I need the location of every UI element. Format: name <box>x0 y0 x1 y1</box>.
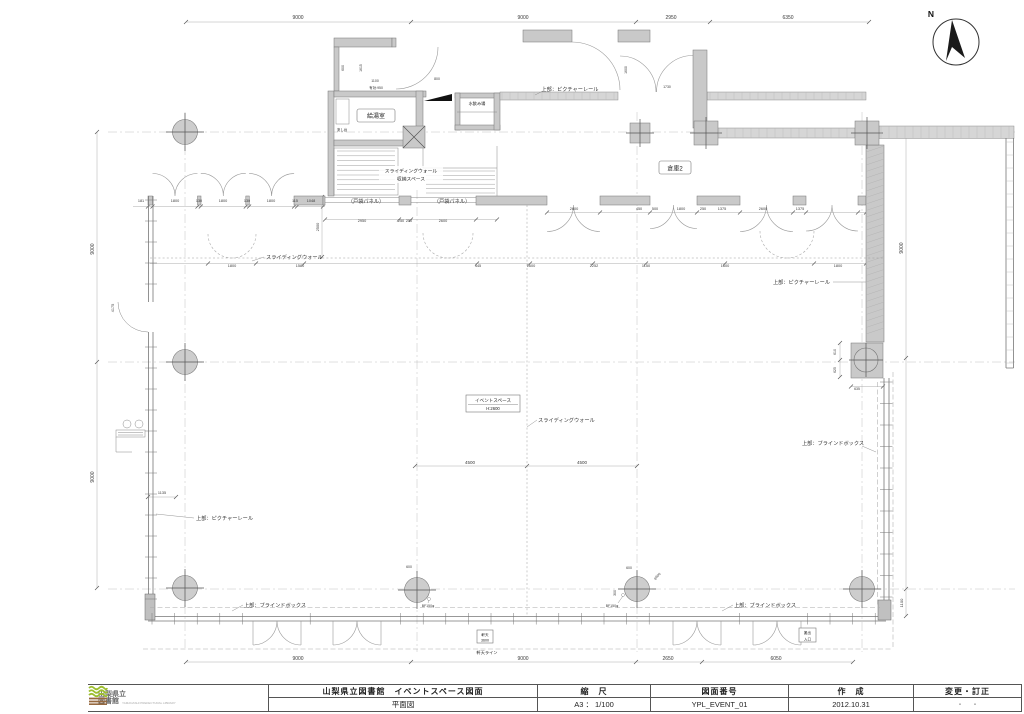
corner-post-se <box>878 600 891 620</box>
service-area-walls <box>328 30 1014 368</box>
dimension-label: 610 <box>833 349 837 355</box>
dimension-label: 4175 <box>111 304 115 312</box>
dimension-label: 1615 <box>359 64 363 72</box>
dimension-label: 115 <box>292 199 298 203</box>
dimension-label: 1800 <box>228 264 236 268</box>
dimension-label: 181 <box>138 199 144 203</box>
dimension-label: 2600 <box>759 207 767 211</box>
dimension-label: 2252 <box>590 264 598 268</box>
dimension-label: 250 <box>398 219 404 223</box>
annotation-label: 上部：ブラインドボックス <box>802 439 864 447</box>
grid-column <box>166 343 204 381</box>
dimension-label: 1600 <box>527 264 535 268</box>
sheet-name: 平面図 <box>269 698 537 711</box>
title-cell-number: 図面番号 YPL_EVENT_01 <box>650 685 788 711</box>
dimension-lines <box>95 20 908 664</box>
dimension-label: 1800 <box>834 264 842 268</box>
storage2-label: 倉庫2 <box>667 165 683 173</box>
dimension-label: 130 <box>244 199 250 203</box>
leaders <box>116 91 876 611</box>
loading-label-1: 搬出 <box>804 630 812 635</box>
dimension-label: 6050 <box>770 656 781 662</box>
logo-text-line1: 山梨県立 <box>98 691 176 698</box>
wall-fixtures <box>116 420 145 452</box>
dimension-label: 250 <box>406 219 412 223</box>
dimension-label: 1150 <box>642 264 650 268</box>
grid-column <box>843 570 881 608</box>
dimension-label: 1800 <box>219 199 227 203</box>
sliding-storage-label-1: スライディングウォール <box>385 168 438 175</box>
dimension-label: 445 <box>475 264 481 268</box>
dimension-label: 有効:950 <box>369 85 383 90</box>
floor-plan-svg: 9000900029506350900090002650605090009000… <box>0 0 1024 684</box>
annotation-label: スライディングウォール <box>266 253 323 261</box>
dimension-label: 130 <box>196 199 202 203</box>
drinking-fountain-label: 水飲み場 <box>469 100 487 107</box>
dimension-label: 800 <box>434 77 440 81</box>
annotation-label: 上部：ブラインドボックス <box>734 601 796 609</box>
grid-column <box>618 570 656 608</box>
dimension-label: BF150φ <box>606 604 619 608</box>
drawing-number-label: 図面番号 <box>651 685 788 698</box>
dimension-label: 600 <box>626 566 632 570</box>
scale-value: A3 ： 1/100 <box>538 698 650 711</box>
dimension-label: 1135 <box>158 491 166 495</box>
revision-label: 変更・訂正 <box>914 685 1021 698</box>
dimension-label: 1800 <box>171 199 179 203</box>
dimension-label: 600 <box>341 65 345 71</box>
room-labels: イベントスペース H:2600 給湯室 流し台 水飲み場 倉庫2 スライディング… <box>337 100 816 656</box>
sink-fixture <box>336 99 349 124</box>
event-space-name: イベントスペース <box>475 398 512 403</box>
dimension-label: 600 <box>406 565 412 569</box>
title-cell-created: 作 成 2012.10.31 <box>788 685 913 711</box>
loading-label-2: 入口 <box>804 637 812 642</box>
square-column <box>626 119 654 147</box>
dimension-label: 1580 <box>296 264 304 268</box>
slope-symbol <box>424 94 452 101</box>
dimension-label: 1800 <box>677 207 685 211</box>
eave-label-2: 3600 <box>481 639 489 643</box>
square-column <box>690 117 722 149</box>
title-cell-project: 山梨県立図書館 イベントスペース図面 平面図 <box>268 685 537 711</box>
kitchenette-label: 給湯室 <box>367 112 385 120</box>
event-space-height: H:2600 <box>486 406 500 411</box>
title-cell-revision: 変更・訂正 ・ ・ <box>913 685 1021 711</box>
title-cell-scale: 縮 尺 A3 ： 1/100 <box>537 685 650 711</box>
dimension-label: 1600 <box>721 264 729 268</box>
scale-label: 縮 尺 <box>538 685 650 698</box>
dimension-label: 4500 <box>577 460 588 465</box>
annotation-labels: 上部：ピクチャーレール上部：ピクチャーレール上部：ピクチャーレール上部：ブライン… <box>196 85 864 609</box>
dimension-label: 4500 <box>465 460 476 465</box>
annotation-label: （戸袋パネル） <box>348 197 384 205</box>
north-wall <box>148 173 866 231</box>
dimension-label: 9000 <box>517 15 528 21</box>
revision-value: ・ ・ <box>914 698 1021 711</box>
grid-column <box>166 113 204 151</box>
dimension-label: 2500 <box>316 223 320 231</box>
dashed-lines <box>143 205 893 649</box>
dimension-label: 2600 <box>439 219 447 223</box>
annotation-label: 上部：ピクチャーレール <box>196 514 253 522</box>
library-logo-icon <box>88 685 108 705</box>
sliding-storage-label-2: 収納スペース <box>397 176 425 183</box>
dimension-label: 2950 <box>665 15 676 21</box>
north-label: N <box>928 9 934 19</box>
dimension-label: 1730 <box>663 85 671 89</box>
dimension-label: 9000 <box>517 656 528 662</box>
dimension-label: 300 <box>613 590 617 596</box>
created-value: 2012.10.31 <box>789 698 913 711</box>
dimension-label: 635 <box>854 387 860 391</box>
library-logo: 山梨県立 図書館 YAMANASHI PREFECTURAL LIBRARY <box>88 685 268 711</box>
dimension-label: 1100 <box>371 79 379 83</box>
dimension-label: 9000 <box>90 243 96 254</box>
dimension-label: 1100 <box>899 598 904 607</box>
eave-line-label: 軒天ライン <box>477 650 498 656</box>
drawing-sheet: 9000900029506350900090002650605090009000… <box>0 0 1024 714</box>
dimension-label: 500 <box>652 207 658 211</box>
dimension-label: 2950 <box>358 219 366 223</box>
dimension-label: 1375 <box>796 207 804 211</box>
dimension-label: 1600 <box>624 66 628 74</box>
logo-subtext: YAMANASHI PREFECTURAL LIBRARY <box>122 702 176 705</box>
dimension-label: 9000 <box>899 242 905 253</box>
created-label: 作 成 <box>789 685 913 698</box>
dimension-label: φ600 <box>653 572 662 581</box>
dimension-label: 2600 <box>570 207 578 211</box>
dimension-label: 1048 <box>307 199 315 203</box>
annotation-label: 上部：ピクチャーレール <box>773 278 830 286</box>
annotation-label: 上部：ブラインドボックス <box>244 601 306 609</box>
dimension-label: 1800 <box>267 199 275 203</box>
project-title: 山梨県立図書館 イベントスペース図面 <box>269 685 537 698</box>
square-column <box>403 126 425 148</box>
grid-column <box>166 569 204 607</box>
dimension-label: 9000 <box>292 656 303 662</box>
annotation-label: スライディングウォール <box>538 416 595 424</box>
dimension-label: 9000 <box>292 15 303 21</box>
north-arrow-icon: N <box>928 9 979 65</box>
dimension-label: 625 <box>833 367 837 373</box>
annotation-label: （戸袋パネル） <box>434 197 470 205</box>
annotation-label: 上部：ピクチャーレール <box>541 85 598 93</box>
drawing-number-value: YPL_EVENT_01 <box>651 698 788 711</box>
corner-post-sw <box>145 594 155 620</box>
sink-label: 流し台 <box>337 127 348 132</box>
square-column <box>851 117 883 149</box>
dimension-label: 250 <box>700 207 706 211</box>
dimension-label: 2650 <box>662 656 673 662</box>
title-block: 山梨県立 図書館 YAMANASHI PREFECTURAL LIBRARY 山… <box>88 684 1022 712</box>
dimension-label: 9000 <box>90 471 96 482</box>
eave-label-1: 軒天 <box>481 632 489 637</box>
dimension-label: 1375 <box>718 207 726 211</box>
dimension-label: 450 <box>636 207 642 211</box>
dimension-label: BF150φ <box>422 604 435 608</box>
dimension-label: 6350 <box>782 15 793 21</box>
